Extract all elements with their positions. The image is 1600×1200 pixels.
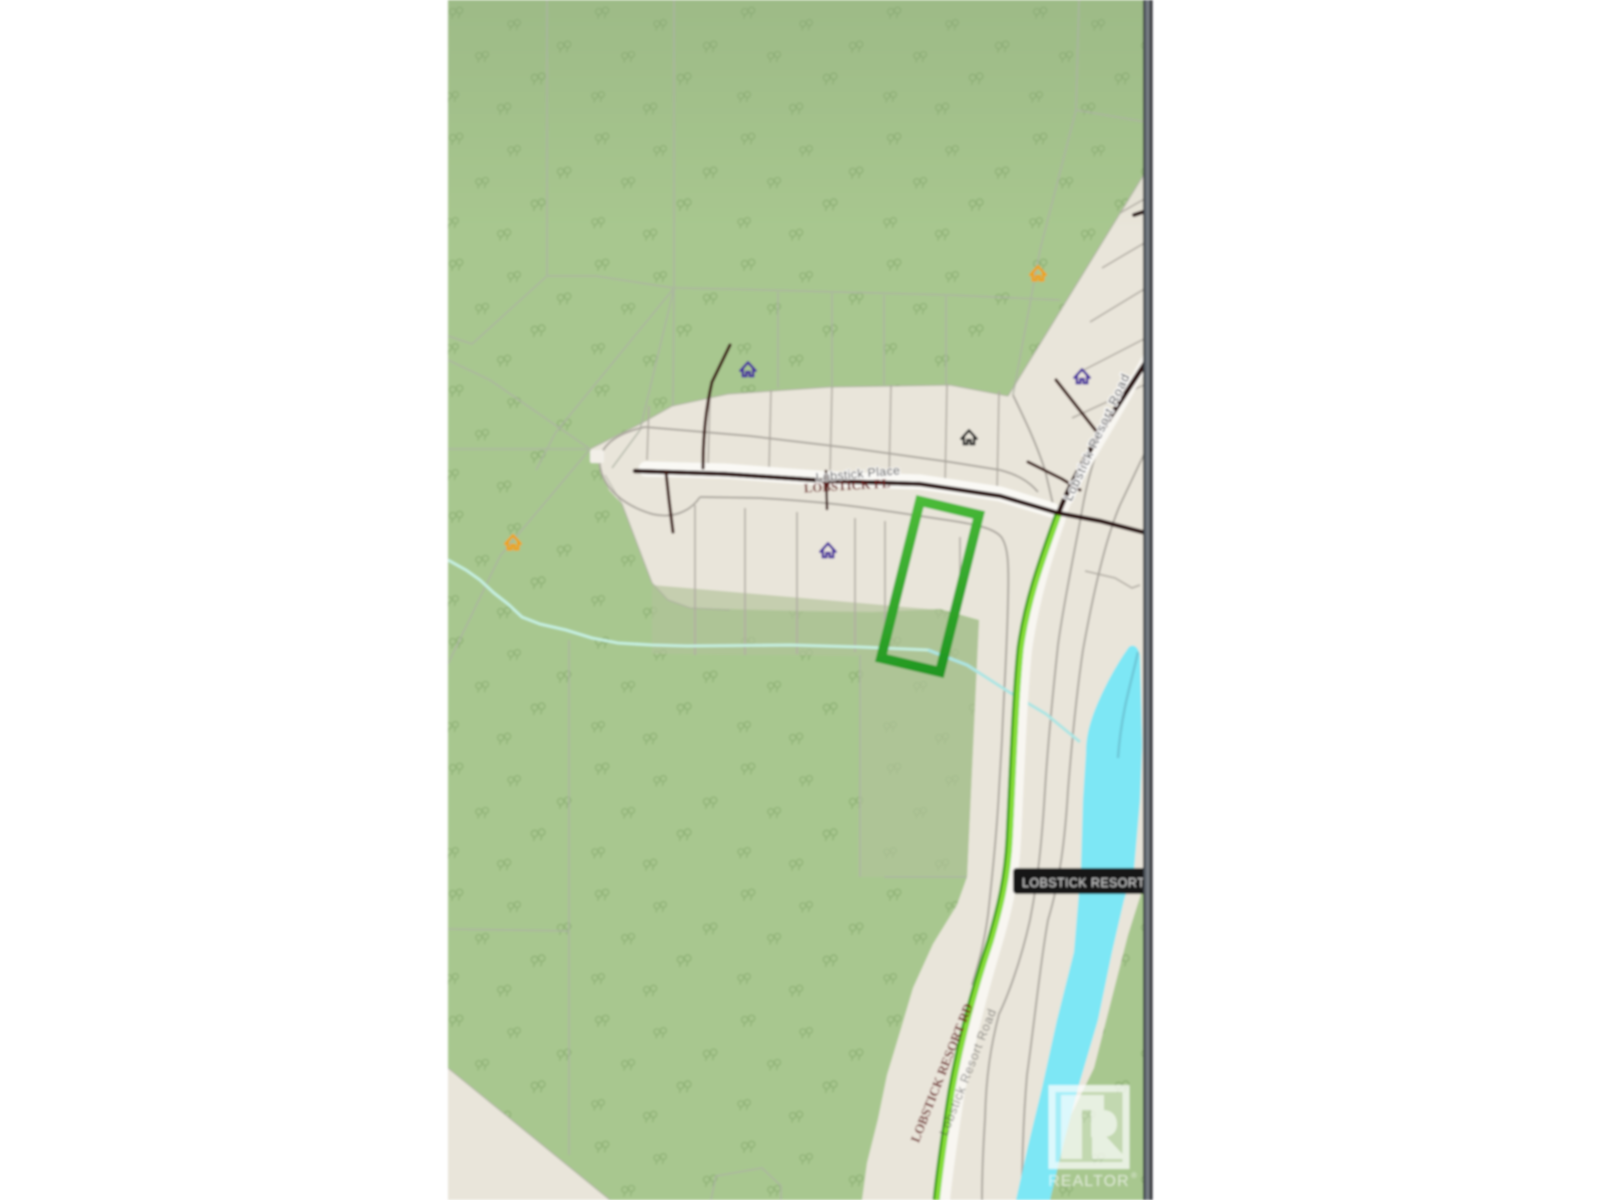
svg-text:REALTOR: REALTOR	[1048, 1173, 1130, 1190]
svg-text:®: ®	[1131, 1171, 1137, 1180]
